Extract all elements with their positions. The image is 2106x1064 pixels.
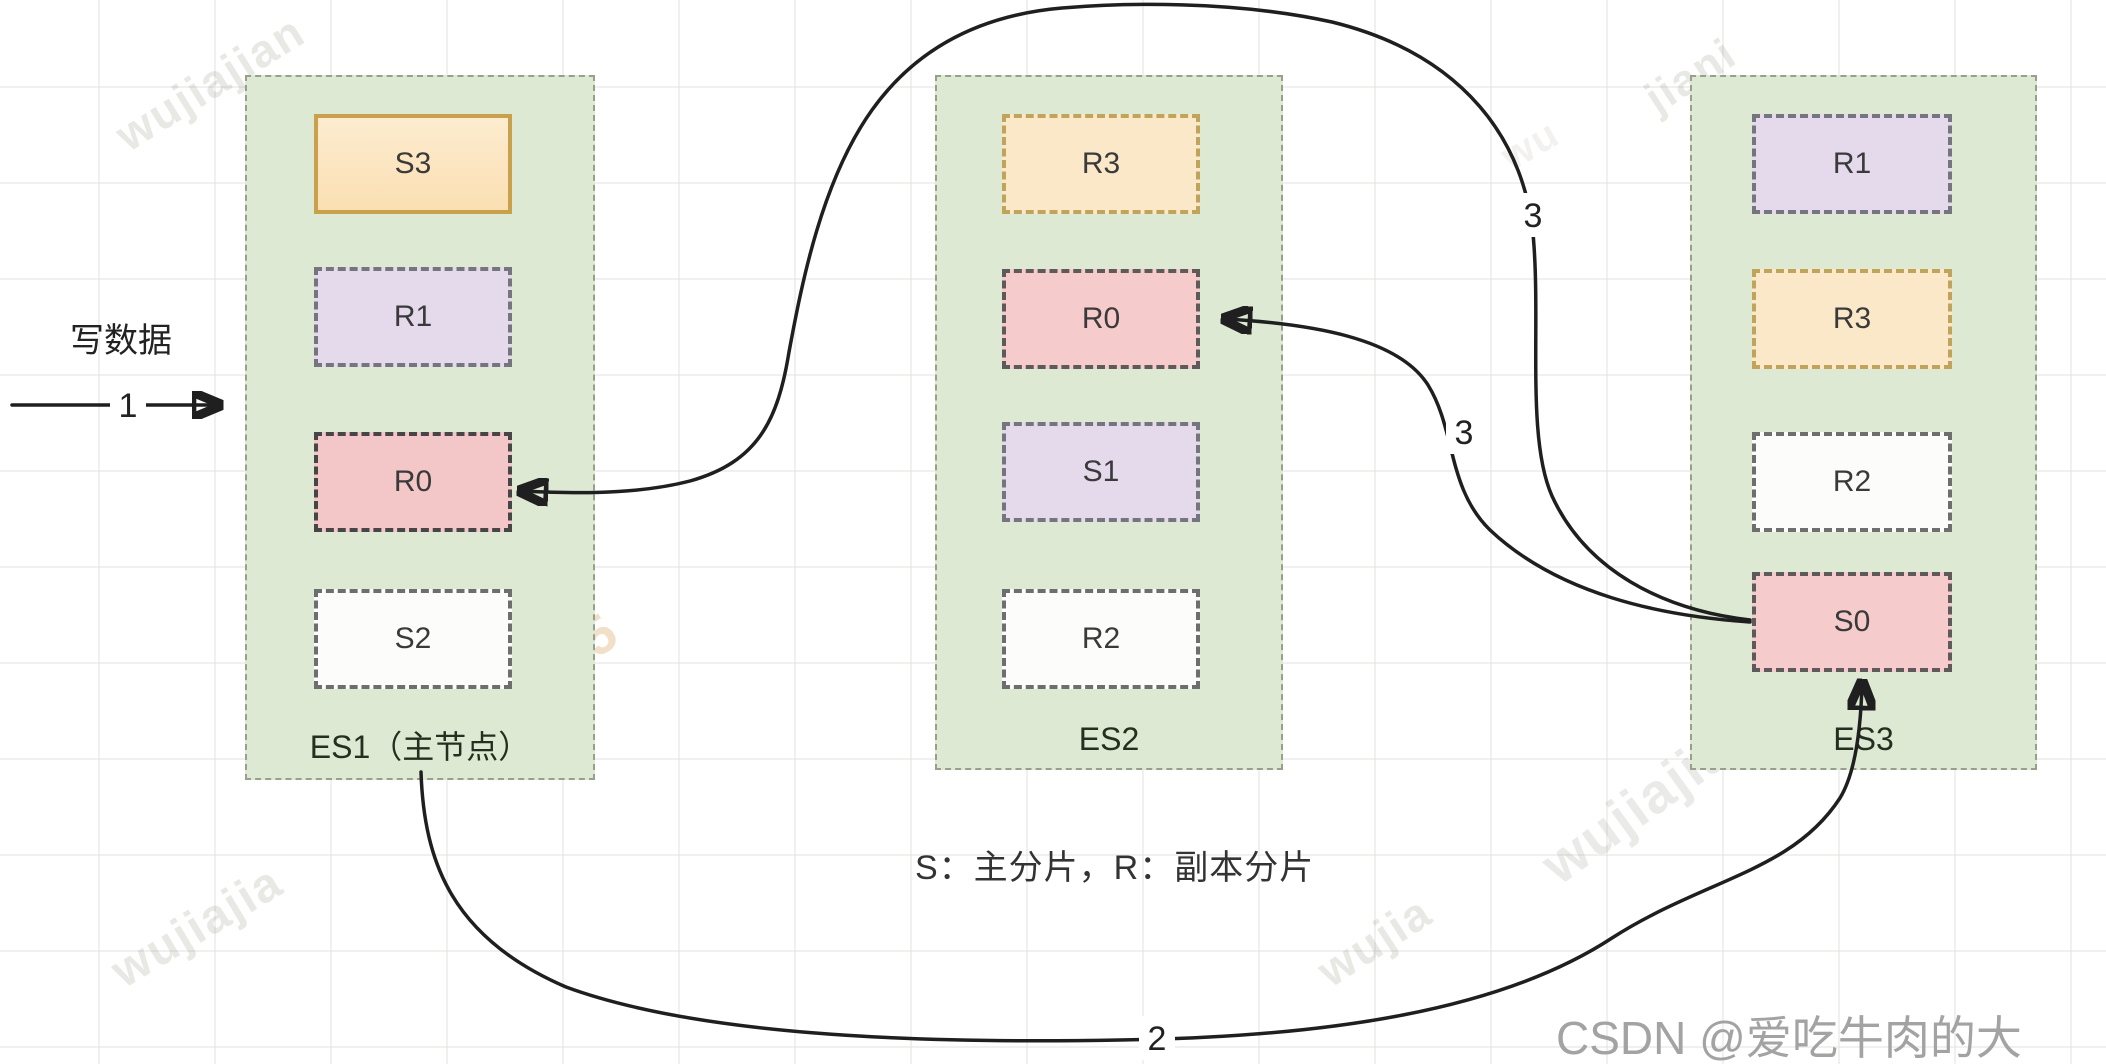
label-gap	[1515, 193, 1551, 237]
arrow-replicate-step3-es2	[1226, 319, 1750, 622]
step-label-3-top: 3	[1524, 197, 1543, 235]
shard-r0-es2: R0	[1002, 269, 1200, 369]
shard-r1-es1: R1	[314, 267, 512, 367]
step-label-3-mid: 3	[1455, 414, 1474, 452]
shard-replication-diagram: wujiajian jiani 190715 wujiajiang1790715…	[0, 0, 2106, 1064]
node-es1: S3 R1 R0 S2 ES1（主节点）	[245, 75, 595, 780]
shard-s2: S2	[314, 589, 512, 689]
watermark: wujia	[1307, 884, 1441, 997]
shard-r0-es1: R0	[314, 432, 512, 532]
node-label-es2: ES2	[937, 721, 1281, 758]
watermark: wujiajia	[102, 854, 293, 999]
csdn-credit: CSDN @爱吃牛肉的大	[1556, 1002, 2022, 1064]
shard-s0: S0	[1752, 572, 1952, 672]
write-data-label: 写数据	[70, 313, 172, 362]
label-gap	[110, 383, 146, 427]
label-gap	[1139, 1016, 1175, 1060]
watermark: wu	[1494, 111, 1568, 180]
node-es3: R1 R3 R2 S0 ES3	[1690, 75, 2037, 770]
shard-r2-es3: R2	[1752, 432, 1952, 532]
legend: S：主分片，R：副本分片	[915, 840, 1314, 889]
shard-r1-es3: R1	[1752, 114, 1952, 214]
node-label-es3: ES3	[1692, 721, 2035, 758]
label-gap	[1446, 410, 1482, 454]
shard-s1: S1	[1002, 422, 1200, 522]
shard-s3: S3	[314, 114, 512, 214]
node-es2: R3 R0 S1 R2 ES2	[935, 75, 1283, 770]
node-label-es1: ES1（主节点）	[247, 722, 593, 768]
shard-r2-es2: R2	[1002, 589, 1200, 689]
shard-r3-es2: R3	[1002, 114, 1200, 214]
step-label-2: 2	[1148, 1020, 1167, 1058]
step-label-1: 1	[119, 387, 138, 425]
shard-r3-es3: R3	[1752, 269, 1952, 369]
